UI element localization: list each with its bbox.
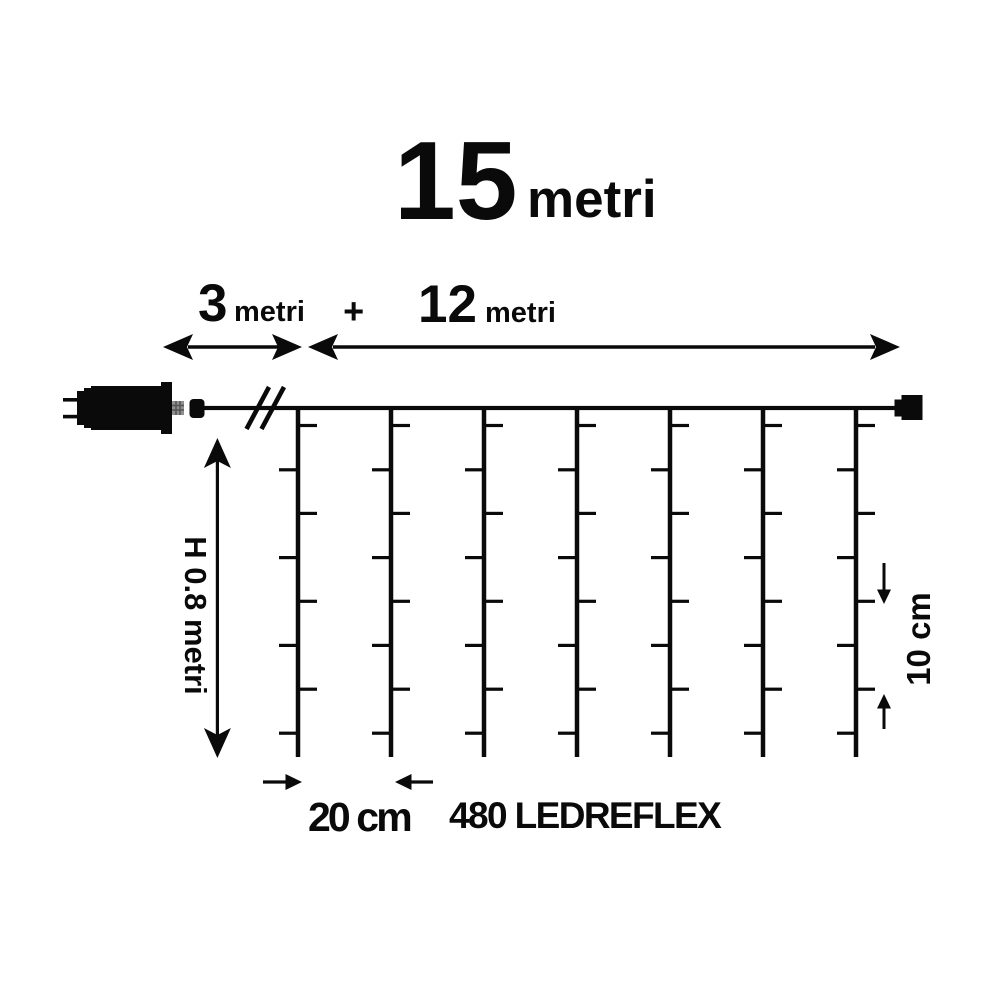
svg-text:20 cm: 20 cm bbox=[308, 794, 410, 840]
svg-text:3: 3 bbox=[198, 274, 227, 333]
svg-text:+: + bbox=[343, 291, 364, 332]
svg-text:metri: metri bbox=[527, 170, 657, 229]
svg-text:12: 12 bbox=[418, 275, 477, 334]
svg-text:metri: metri bbox=[234, 296, 305, 328]
svg-text:15: 15 bbox=[394, 119, 517, 243]
svg-text:H 0.8 metri: H 0.8 metri bbox=[178, 536, 213, 695]
svg-text:metri: metri bbox=[485, 297, 556, 329]
svg-text:10 cm: 10 cm bbox=[900, 592, 937, 686]
svg-text:480 LEDREFLEX: 480 LEDREFLEX bbox=[449, 795, 722, 836]
